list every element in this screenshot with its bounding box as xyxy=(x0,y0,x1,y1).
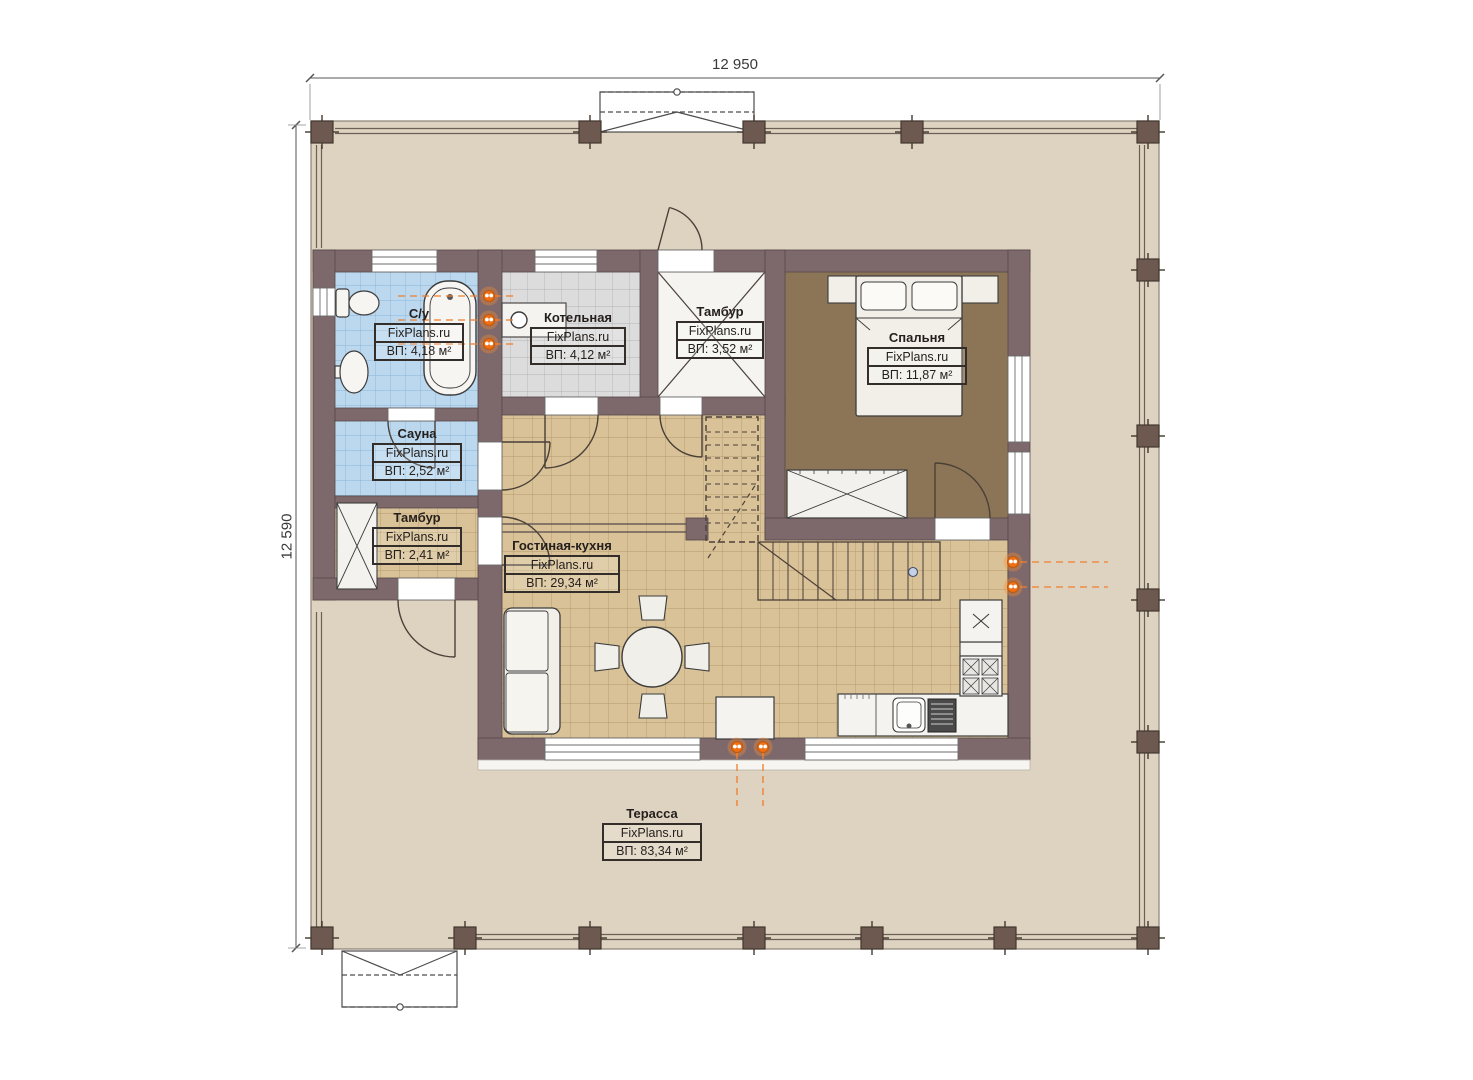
entry-steps-bottom xyxy=(342,951,457,1010)
room-name: Котельная xyxy=(530,310,626,325)
room-label-boiler: Котельная FixPlans.ru ВП: 4,12 м² xyxy=(530,310,626,365)
room-name: Тамбур xyxy=(676,304,764,319)
toilet-icon xyxy=(336,289,379,317)
room-label-terrace: Терасса FixPlans.ru ВП: 83,34 м² xyxy=(602,806,702,861)
room-info-box: FixPlans.ru ВП: 2,52 м² xyxy=(372,443,462,481)
watermark: FixPlans.ru xyxy=(374,445,460,463)
kitchen-island xyxy=(716,697,774,739)
room-area: ВП: 2,41 м² xyxy=(374,547,460,563)
room-area: ВП: 2,52 м² xyxy=(374,463,460,479)
entry-steps-top xyxy=(600,89,754,132)
room-info-box: FixPlans.ru ВП: 3,52 м² xyxy=(676,321,764,359)
watermark: FixPlans.ru xyxy=(376,325,462,343)
room-label-bathroom: С/у FixPlans.ru ВП: 4,18 м² xyxy=(374,306,464,361)
room-name: Тамбур xyxy=(372,510,462,525)
room-label-vestibule-top: Тамбур FixPlans.ru ВП: 3,52 м² xyxy=(676,304,764,359)
dimension-height-label: 12 590 xyxy=(279,497,296,577)
watermark: FixPlans.ru xyxy=(506,557,618,575)
room-label-vestibule-left: Тамбур FixPlans.ru ВП: 2,41 м² xyxy=(372,510,462,565)
room-info-box: FixPlans.ru ВП: 29,34 м² xyxy=(504,555,620,593)
kitchen-sink-icon xyxy=(893,698,925,732)
room-name: Терасса xyxy=(602,806,702,821)
room-name: Сауна xyxy=(372,426,462,441)
fridge-icon xyxy=(960,600,1002,642)
sofa-icon xyxy=(504,608,560,734)
room-area: ВП: 4,12 м² xyxy=(532,347,624,363)
watermark: FixPlans.ru xyxy=(532,329,624,347)
room-label-living-kitchen: Гостиная-кухня FixPlans.ru ВП: 29,34 м² xyxy=(504,538,620,593)
floor-plan-drawing xyxy=(0,0,1473,1080)
room-info-box: FixPlans.ru ВП: 11,87 м² xyxy=(867,347,967,385)
room-name: С/у xyxy=(374,306,464,321)
closet-icon xyxy=(337,503,377,589)
room-info-box: FixPlans.ru ВП: 2,41 м² xyxy=(372,527,462,565)
exterior-sill xyxy=(478,760,1030,770)
room-label-sauna: Сауна FixPlans.ru ВП: 2,52 м² xyxy=(372,426,462,481)
room-label-bedroom: Спальня FixPlans.ru ВП: 11,87 м² xyxy=(867,330,967,385)
room-area: ВП: 83,34 м² xyxy=(604,843,700,859)
room-info-box: FixPlans.ru ВП: 4,18 м² xyxy=(374,323,464,361)
watermark: FixPlans.ru xyxy=(374,529,460,547)
room-name: Гостиная-кухня xyxy=(504,538,620,553)
room-area: ВП: 11,87 м² xyxy=(869,367,965,383)
room-area: ВП: 3,52 м² xyxy=(678,341,762,357)
watermark: FixPlans.ru xyxy=(604,825,700,843)
room-area: ВП: 29,34 м² xyxy=(506,575,618,591)
stove-icon xyxy=(960,656,1002,696)
watermark: FixPlans.ru xyxy=(869,349,965,367)
dishwasher-icon xyxy=(928,699,956,732)
floor-plan-canvas: 12 950 12 590 С/у FixPlans.ru ВП: 4,18 м… xyxy=(0,0,1473,1080)
room-name: Спальня xyxy=(867,330,967,345)
watermark: FixPlans.ru xyxy=(678,323,762,341)
wardrobe-icon xyxy=(787,470,907,518)
room-info-box: FixPlans.ru ВП: 4,12 м² xyxy=(530,327,626,365)
dimension-width-label: 12 950 xyxy=(695,56,775,73)
room-area: ВП: 4,18 м² xyxy=(376,343,462,359)
room-info-box: FixPlans.ru ВП: 83,34 м² xyxy=(602,823,702,861)
